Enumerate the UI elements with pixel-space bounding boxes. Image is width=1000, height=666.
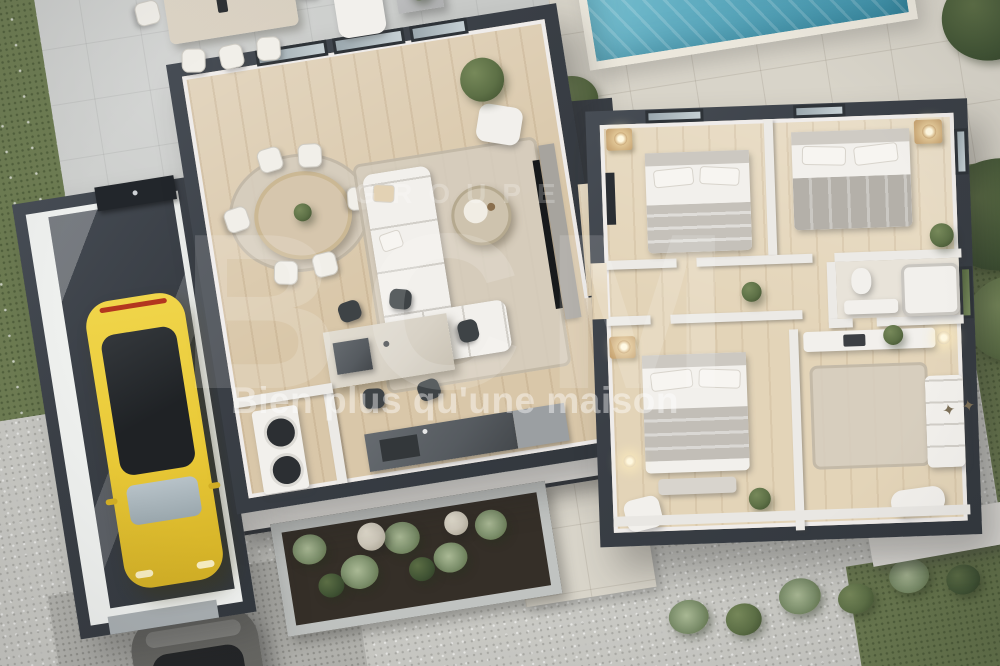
kitchen-counter-light (512, 403, 569, 449)
agave-plant (431, 540, 469, 575)
bathroom-vanity (844, 299, 898, 315)
partition-wall (606, 315, 650, 326)
island-hob (333, 338, 374, 375)
table-plant (405, 0, 432, 2)
kitchen-faucet (422, 429, 428, 435)
partition-wall (829, 318, 853, 328)
ornamental-grass (724, 601, 765, 638)
bed (791, 128, 912, 230)
pillow (853, 142, 899, 166)
toilet (851, 268, 872, 295)
outdoor-chair (181, 48, 205, 72)
table-tray (462, 198, 489, 225)
outdoor-chair (256, 36, 282, 62)
dryer-door (267, 451, 306, 490)
laptop (843, 334, 865, 347)
kitchen-sink (379, 434, 420, 462)
blanket (644, 406, 750, 462)
blanket (793, 174, 913, 230)
washer-door (261, 413, 300, 452)
bathroom-window (959, 266, 974, 318)
aerial-scene: ✦ ✦ (0, 0, 1000, 666)
stone-sphere (355, 521, 387, 553)
agave-plant (290, 532, 328, 567)
bar-stool (362, 388, 385, 409)
glass-pane (796, 107, 842, 116)
pillow (698, 368, 741, 388)
bar-stool (389, 288, 413, 310)
area-rug (809, 362, 931, 470)
car-headlight (196, 560, 215, 570)
ornamental-grass (776, 575, 823, 617)
table-plant (292, 202, 313, 223)
garden-view-pane (962, 269, 971, 315)
wardrobe-mirror (605, 173, 616, 225)
agave-plant (382, 519, 423, 556)
glass-pane (648, 112, 700, 121)
agave-plant (473, 507, 509, 542)
dining-chair (297, 143, 322, 168)
armchair (475, 102, 524, 146)
bed (642, 352, 750, 474)
car-mirror (105, 498, 118, 506)
agave-plant (338, 552, 381, 592)
boxwood-ball (407, 555, 436, 583)
stone-sphere (442, 509, 469, 536)
hallway-entry (591, 263, 609, 320)
glass-pane (957, 131, 965, 171)
table-decor (487, 202, 496, 211)
car-headlight (135, 569, 154, 579)
car-roof-glass (100, 325, 197, 477)
headboard (642, 352, 746, 369)
living-wing (166, 3, 627, 514)
blanket (647, 202, 753, 254)
dining-chair (274, 261, 298, 285)
corner-window (954, 128, 969, 174)
bedroom2-window (793, 104, 845, 119)
bed (645, 150, 752, 254)
floorplan-3d-render: ✦ ✦ GROUPE BCM Bien plus qu'une maison (0, 0, 1000, 666)
island-faucet (383, 340, 390, 347)
table-bottle (216, 0, 228, 13)
car-windshield (125, 475, 202, 526)
bathtub (901, 263, 961, 317)
pillow (699, 166, 740, 186)
door-handle (132, 190, 138, 196)
bed-bench (658, 477, 737, 496)
ornamental-grass (666, 597, 711, 637)
bedroom1-window (645, 108, 703, 123)
pillow (653, 166, 695, 188)
throw-pillow (372, 184, 395, 203)
pillow (802, 146, 846, 166)
car-taillight (99, 298, 167, 314)
bedroom-wing: ✦ ✦ (585, 98, 982, 547)
star-wall-decor: ✦ ✦ (937, 397, 984, 441)
headboard (645, 150, 749, 167)
pillow (650, 368, 694, 392)
